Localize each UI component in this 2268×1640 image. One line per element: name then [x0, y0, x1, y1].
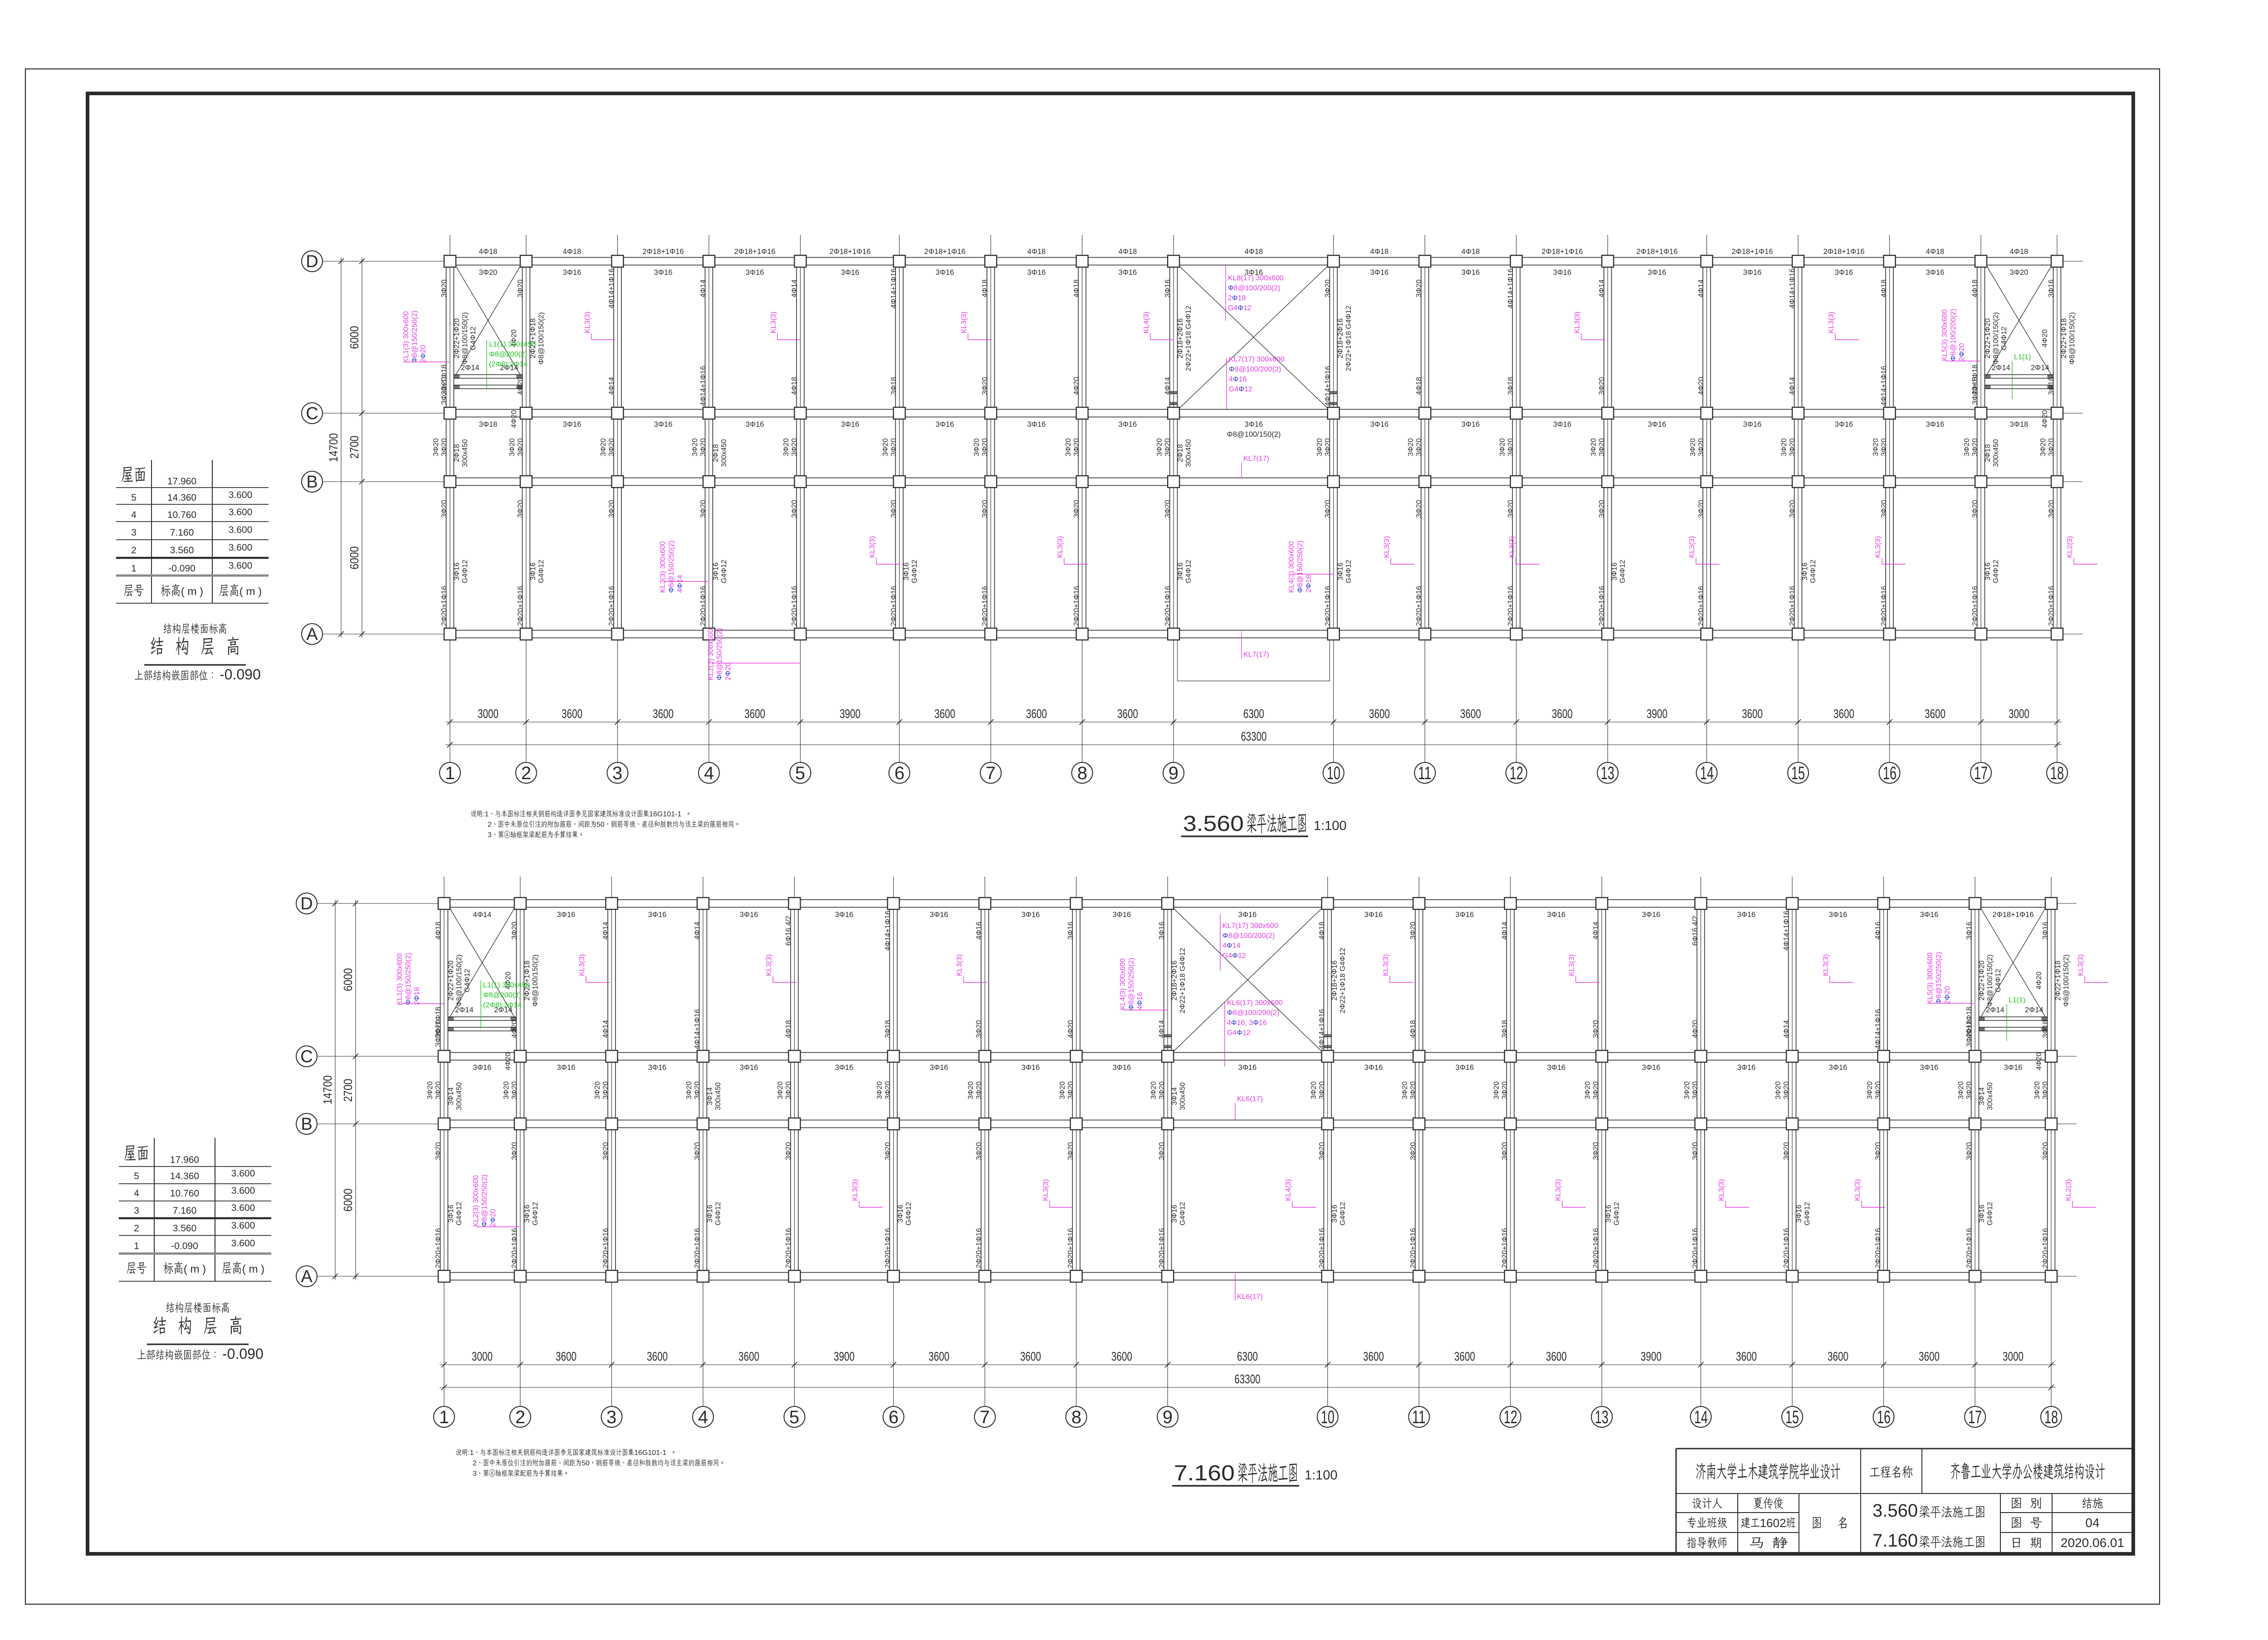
svg-text:3Φ20: 3Φ20: [435, 1081, 442, 1099]
svg-text:Φ: Φ: [1228, 284, 1234, 292]
svg-text:3Φ16: 3Φ16: [1553, 268, 1572, 277]
svg-text:3Φ20: 3Φ20: [694, 1142, 701, 1160]
svg-text:Φ: Φ: [1229, 366, 1235, 373]
svg-text:3Φ16: 3Φ16: [453, 562, 461, 581]
svg-text:3Φ16: 3Φ16: [563, 268, 582, 277]
svg-text:2Φ20+1Φ16: 2Φ20+1Φ16: [1971, 586, 1979, 626]
svg-text:3Φ20: 3Φ20: [1156, 438, 1163, 456]
svg-text:2Φ18+1Φ16: 2Φ18+1Φ16: [924, 248, 965, 256]
svg-text:1: 1: [1296, 571, 1304, 576]
svg-text:Φ: Φ: [1238, 386, 1244, 393]
svg-text:KL2(3): KL2(3): [2066, 536, 2074, 558]
svg-text:3Φ16: 3Φ16: [1456, 911, 1474, 919]
svg-text:G4Φ12: G4Φ12: [1185, 560, 1193, 583]
svg-text:4: 4: [1232, 1029, 1237, 1037]
svg-text:3Φ16: 3Φ16: [1829, 911, 1848, 919]
svg-text:3Φ20: 3Φ20: [981, 500, 989, 518]
svg-text:3Φ16: 3Φ16: [1113, 911, 1131, 919]
svg-text:3Φ16: 3Φ16: [835, 1064, 854, 1072]
svg-text:3Φ16: 3Φ16: [1027, 420, 1046, 429]
svg-text:3Φ20: 3Φ20: [1598, 500, 1606, 518]
svg-text:3Φ20: 3Φ20: [2048, 438, 2055, 456]
svg-text:3Φ16: 3Φ16: [563, 420, 582, 429]
svg-text:0: 0: [716, 651, 723, 655]
svg-text:2Φ20+1Φ16: 2Φ20+1Φ16: [1691, 1228, 1699, 1268]
svg-text:): ): [405, 953, 412, 955]
svg-text:KL5(3) 300x600: KL5(3) 300x600: [1926, 952, 1934, 1004]
svg-text:6000: 6000: [341, 968, 355, 991]
svg-text:300x450: 300x450: [455, 1082, 463, 1110]
svg-text:0: 0: [1248, 1009, 1252, 1017]
svg-text:3Φ20: 3Φ20: [1409, 922, 1417, 940]
svg-text:3900: 3900: [1641, 1349, 1662, 1363]
svg-text:4Φ18: 4Φ18: [791, 377, 798, 395]
svg-text:1: 1: [1242, 1029, 1246, 1037]
svg-text:300x450: 300x450: [714, 1082, 722, 1110]
svg-text:3Φ20: 3Φ20: [1971, 438, 1979, 456]
svg-text:3Φ20: 3Φ20: [1783, 1081, 1790, 1099]
svg-text:KL7(17): KL7(17): [1243, 651, 1269, 659]
svg-text:3Φ20: 3Φ20: [1789, 500, 1796, 518]
svg-text:3Φ16: 3Φ16: [654, 268, 673, 277]
svg-text:3Φ16: 3Φ16: [903, 562, 910, 581]
svg-text:4Φ18: 4Φ18: [1409, 1020, 1417, 1038]
svg-text:3Φ16: 3Φ16: [746, 420, 764, 429]
svg-text:3Φ18: 3Φ18: [2048, 377, 2055, 395]
svg-text:1: 1: [1128, 989, 1135, 993]
svg-text:1: 1: [1259, 1019, 1263, 1027]
svg-text:0: 0: [1252, 1009, 1256, 1017]
svg-text:3Φ20: 3Φ20: [517, 438, 524, 456]
svg-text:3Φ20: 3Φ20: [1415, 279, 1423, 298]
svg-text:0: 0: [1128, 966, 1135, 971]
svg-text:1: 1: [1136, 996, 1144, 1000]
svg-text:Φ: Φ: [489, 1217, 497, 1223]
svg-text:G4Φ12: G4Φ12: [911, 560, 919, 583]
svg-text:4Φ18: 4Φ18: [1370, 248, 1389, 256]
svg-text:G4Φ12: G4Φ12: [461, 560, 469, 583]
svg-text:): ): [1279, 366, 1281, 373]
svg-text:0: 0: [668, 563, 675, 567]
svg-text:3Φ16: 3Φ16: [1642, 1064, 1661, 1072]
svg-text:12: 12: [1504, 1407, 1517, 1427]
svg-text:3Φ20: 3Φ20: [426, 1081, 434, 1099]
svg-text:300x450: 300x450: [1179, 1082, 1187, 1110]
svg-text:11: 11: [1418, 763, 1432, 783]
svg-text:3Φ20: 3Φ20: [975, 1142, 983, 1160]
svg-text:3Φ20: 3Φ20: [1073, 438, 1080, 456]
svg-text:3Φ20: 3Φ20: [1697, 438, 1705, 456]
svg-text:3Φ20: 3Φ20: [1584, 1081, 1592, 1099]
svg-text:): ): [1272, 932, 1275, 940]
svg-text:4Φ14+1Φ16: 4Φ14+1Φ16: [1507, 268, 1515, 308]
svg-text:Φ: Φ: [1232, 294, 1238, 302]
svg-text:5: 5: [481, 1187, 489, 1191]
svg-text:0: 0: [1253, 284, 1257, 292]
svg-text:Φ8@100/150(2): Φ8@100/150(2): [2068, 312, 2076, 364]
svg-text:3Φ20: 3Φ20: [1507, 438, 1515, 456]
svg-text:2: 2: [1268, 932, 1272, 940]
svg-text:2: 2: [724, 676, 732, 680]
svg-text:L1(1) 300x450: L1(1) 300x450: [489, 341, 536, 348]
svg-text:2: 2: [1935, 954, 1943, 958]
svg-text:-0.090: -0.090: [168, 563, 196, 574]
svg-text:6: 6: [1243, 376, 1247, 383]
svg-text:15: 15: [1791, 763, 1805, 783]
svg-text:0: 0: [716, 637, 723, 641]
svg-text:KL2(3): KL2(3): [2065, 1179, 2072, 1201]
svg-text:3600: 3600: [1460, 707, 1481, 721]
svg-text:3Φ20: 3Φ20: [503, 1081, 510, 1099]
svg-text:2Φ20+1Φ16: 2Φ20+1Φ16: [699, 586, 707, 626]
svg-text:4Φ14: 4Φ14: [602, 1020, 610, 1038]
svg-text:KL8(17) 300x600: KL8(17) 300x600: [1228, 274, 1284, 282]
svg-text:8: 8: [1233, 1009, 1237, 1017]
svg-text:G4Φ12: G4Φ12: [714, 1202, 722, 1225]
svg-text:7.160: 7.160: [1174, 1461, 1235, 1485]
svg-text:1: 1: [1238, 952, 1242, 960]
svg-text:6: 6: [889, 1407, 899, 1427]
svg-text:3Φ20: 3Φ20: [1592, 1142, 1600, 1160]
svg-text:4: 4: [1136, 1006, 1144, 1010]
svg-text:4: 4: [1228, 952, 1232, 960]
svg-text:6: 6: [1263, 1019, 1267, 1027]
svg-text:3Φ20: 3Φ20: [882, 438, 890, 456]
svg-text:2Φ20+1Φ16: 2Φ20+1Φ16: [608, 586, 616, 626]
svg-text:10.760: 10.760: [167, 510, 196, 520]
svg-text:2: 2: [481, 1177, 489, 1181]
svg-text:KL3(3): KL3(3): [1854, 1179, 1862, 1201]
svg-text:3Φ20: 3Φ20: [1592, 1081, 1600, 1099]
svg-text:2Φ22+1Φ18: 2Φ22+1Φ18: [523, 961, 531, 1001]
svg-text:3Φ16: 3Φ16: [1245, 420, 1263, 429]
svg-text:4Φ14: 4Φ14: [1501, 922, 1509, 940]
svg-text:4Φ14: 4Φ14: [1158, 1020, 1166, 1038]
svg-text:KL6(17) 300x600: KL6(17) 300x600: [1227, 999, 1283, 1007]
svg-text:3Φ20: 3Φ20: [1073, 500, 1080, 518]
svg-text:3.600: 3.600: [229, 561, 253, 571]
svg-text:4Φ20: 4Φ20: [1691, 1020, 1699, 1038]
svg-text:4Φ18: 4Φ18: [785, 1020, 792, 1038]
svg-text:KL3(3): KL3(3): [851, 1179, 859, 1201]
svg-text:3Φ20: 3Φ20: [2033, 1081, 2041, 1099]
svg-text:2: 2: [724, 666, 732, 670]
svg-text:1:100: 1:100: [1314, 819, 1347, 833]
svg-text:3Φ16: 3Φ16: [1547, 911, 1566, 919]
svg-text:2: 2: [1950, 311, 1957, 315]
svg-text:3: 3: [606, 1407, 616, 1427]
svg-text:): ): [1935, 952, 1943, 954]
svg-text:4Φ14+1Φ16: 4Φ14+1Φ16: [1783, 911, 1790, 951]
svg-text:8: 8: [1296, 583, 1304, 587]
svg-text:1: 1: [1244, 386, 1248, 393]
svg-text:4Φ14: 4Φ14: [791, 279, 798, 298]
svg-text:14700: 14700: [327, 433, 340, 462]
svg-text:3Φ16: 3Φ16: [1119, 420, 1137, 429]
svg-text:3Φ20: 3Φ20: [1780, 438, 1788, 456]
svg-text:3600: 3600: [744, 707, 765, 721]
svg-text:4Φ18: 4Φ18: [1318, 922, 1326, 940]
svg-text:2Φ22+1Φ20: 2Φ22+1Φ20: [447, 961, 455, 1001]
svg-text:5: 5: [795, 763, 805, 783]
svg-text:3Φ20: 3Φ20: [1316, 438, 1324, 456]
svg-text:2: 2: [716, 645, 723, 649]
svg-text:6300: 6300: [1237, 1349, 1258, 1363]
svg-text:3Φ20: 3Φ20: [981, 438, 989, 456]
svg-text:): ): [411, 311, 419, 313]
svg-text:2Φ22+1Φ18: 2Φ22+1Φ18: [2060, 318, 2068, 358]
svg-text:3Φ16: 3Φ16: [1743, 268, 1762, 277]
svg-text:5: 5: [1296, 567, 1304, 571]
svg-text:3Φ16: 3Φ16: [648, 911, 667, 919]
svg-text:3Φ20: 3Φ20: [1324, 500, 1332, 518]
svg-text:04: 04: [2085, 1516, 2099, 1530]
svg-text:7.160: 7.160: [170, 527, 194, 538]
svg-text:3.600: 3.600: [229, 525, 253, 535]
svg-text:17: 17: [1968, 1407, 1982, 1427]
svg-text:8: 8: [413, 987, 421, 991]
svg-text:3600: 3600: [1833, 707, 1854, 721]
svg-text:4: 4: [134, 1188, 139, 1199]
svg-text:3Φ16: 3Φ16: [1795, 1205, 1803, 1223]
svg-text:3Φ16: 3Φ16: [447, 1205, 455, 1223]
svg-text:5: 5: [668, 567, 675, 571]
svg-text:3Φ20: 3Φ20: [884, 1142, 892, 1160]
svg-text:3Φ20: 3Φ20: [1965, 1142, 1973, 1160]
svg-text:3Φ20: 3Φ20: [479, 268, 498, 277]
svg-text:3Φ16: 3Φ16: [1648, 268, 1667, 277]
svg-text:2Φ20+1Φ16: 2Φ20+1Φ16: [1501, 1228, 1509, 1268]
svg-text:2: 2: [413, 1001, 421, 1005]
svg-text:( m ): ( m ): [240, 586, 262, 598]
svg-text:Φ: Φ: [724, 670, 732, 676]
svg-text:KL3(3): KL3(3): [1042, 1179, 1050, 1201]
svg-text:KL3(3): KL3(3): [1574, 312, 1581, 333]
svg-text:3Φ20: 3Φ20: [1789, 438, 1796, 456]
svg-text:3Φ20: 3Φ20: [699, 500, 707, 518]
svg-text:4Φ14: 4Φ14: [1783, 1020, 1790, 1038]
svg-text:C: C: [306, 404, 318, 423]
svg-text:2Φ18: 2Φ18: [712, 444, 720, 462]
svg-text:10: 10: [1327, 763, 1340, 783]
svg-text:KL6(17): KL6(17): [1237, 1293, 1263, 1301]
svg-text:KL7(17) 300x600: KL7(17) 300x600: [1229, 356, 1285, 363]
svg-text:5: 5: [481, 1201, 489, 1206]
svg-text:KL3(3): KL3(3): [1554, 1179, 1562, 1201]
svg-text:KL3(3): KL3(3): [956, 954, 963, 976]
svg-text:2Φ14: 2Φ14: [1986, 1006, 2004, 1014]
svg-text:2: 2: [473, 1459, 477, 1467]
svg-text:3.600: 3.600: [229, 507, 253, 517]
svg-text:): ): [481, 1175, 489, 1177]
svg-text:3Φ20: 3Φ20: [791, 500, 798, 518]
svg-text:2Φ20+1Φ16: 2Φ20+1Φ16: [791, 586, 798, 626]
svg-text:3Φ16: 3Φ16: [1337, 562, 1344, 581]
svg-text:G4Φ12: G4Φ12: [1992, 560, 2000, 583]
svg-text:3Φ20: 3Φ20: [1067, 1142, 1075, 1160]
svg-text:Φ: Φ: [1232, 952, 1238, 960]
svg-text:4Φ14+1Φ16: 4Φ14+1Φ16: [1318, 1009, 1326, 1049]
svg-text:G4Φ12: G4Φ12: [538, 560, 545, 583]
svg-text:3Φ20: 3Φ20: [602, 1142, 610, 1160]
svg-text:4Φ18: 4Φ18: [981, 279, 989, 298]
svg-text:KL3(3): KL3(3): [1822, 954, 1830, 976]
svg-text:3Φ20: 3Φ20: [1697, 500, 1705, 518]
svg-text:8: 8: [1234, 284, 1238, 292]
svg-text:2: 2: [1246, 1029, 1251, 1037]
svg-text:0: 0: [1935, 961, 1943, 965]
svg-text:Φ: Φ: [1305, 583, 1313, 589]
svg-text:3Φ16: 3Φ16: [1171, 1205, 1178, 1223]
svg-text:3Φ20: 3Φ20: [1401, 1081, 1409, 1099]
svg-text:3600: 3600: [647, 1349, 668, 1363]
svg-text:2Φ18+1Φ16: 2Φ18+1Φ16: [1636, 248, 1677, 256]
svg-text:Φ8@100/150(2): Φ8@100/150(2): [1227, 430, 1281, 439]
svg-text:3Φ20: 3Φ20: [1409, 1081, 1417, 1099]
svg-text:Φ: Φ: [420, 353, 427, 359]
svg-text:3600: 3600: [1454, 1349, 1475, 1363]
svg-text:4Φ14: 4Φ14: [1598, 279, 1606, 298]
svg-text:4Φ18: 4Φ18: [435, 922, 442, 940]
svg-text:2Φ20+1Φ16: 2Φ20+1Φ16: [1592, 1228, 1600, 1268]
svg-text:63300: 63300: [1241, 729, 1267, 743]
svg-text:(2Φ8);2Φ14: (2Φ8);2Φ14: [483, 1001, 522, 1009]
svg-text:2Φ22+1Φ18 G4Φ12: 2Φ22+1Φ18 G4Φ12: [1179, 948, 1187, 1014]
svg-text:2700: 2700: [347, 436, 361, 459]
svg-text:0: 0: [411, 319, 419, 323]
svg-text:3Φ20: 3Φ20: [594, 1081, 601, 1099]
svg-text:1:100: 1:100: [1305, 1468, 1338, 1483]
svg-text:2Φ20+1Φ16: 2Φ20+1Φ16: [981, 586, 989, 626]
svg-text:3Φ16: 3Φ16: [740, 911, 758, 919]
svg-text:3Φ20: 3Φ20: [2042, 1081, 2049, 1099]
svg-text:G4Φ12: G4Φ12: [532, 1202, 539, 1225]
svg-text:3Φ16: 3Φ16: [1737, 1064, 1756, 1072]
svg-text:17.960: 17.960: [167, 476, 196, 487]
svg-text:5: 5: [1128, 985, 1135, 989]
svg-text:3Φ14: 3Φ14: [1171, 1087, 1178, 1105]
svg-text:2Φ20+1Φ16: 2Φ20+1Φ16: [1874, 1228, 1882, 1268]
svg-text:3: 3: [473, 1470, 477, 1478]
svg-text:4Φ18: 4Φ18: [1926, 248, 1945, 256]
svg-text:3Φ20: 3Φ20: [508, 438, 516, 456]
svg-text:3Φ16: 3Φ16: [1743, 420, 1762, 429]
svg-text:): ): [668, 541, 675, 543]
svg-text:3Φ16: 3Φ16: [930, 1064, 948, 1072]
svg-text:4Φ18: 4Φ18: [1245, 248, 1263, 256]
svg-text:0: 0: [1249, 284, 1253, 292]
svg-text:1: 1: [1244, 1009, 1248, 1017]
svg-text:Φ: Φ: [1958, 351, 1966, 357]
svg-text:3Φ20: 3Φ20: [600, 438, 607, 456]
svg-text:2Φ20+1Φ16: 2Φ20+1Φ16: [1324, 586, 1332, 626]
svg-text:2Φ20+1Φ16: 2Φ20+1Φ16: [440, 586, 448, 626]
svg-text:1: 1: [411, 342, 419, 346]
svg-text:9: 9: [1163, 1407, 1173, 1427]
svg-text:3.600: 3.600: [231, 1220, 255, 1231]
svg-text:2Φ18+2Φ16: 2Φ18+2Φ16: [1177, 318, 1184, 358]
svg-text:2: 2: [1242, 952, 1246, 960]
svg-text:7.160: 7.160: [1872, 1531, 1918, 1551]
svg-text:3Φ16: 3Φ16: [1547, 1064, 1566, 1072]
svg-text:2Φ14: 2Φ14: [461, 364, 479, 372]
svg-text:3Φ20: 3Φ20: [435, 1020, 442, 1038]
svg-text:2: 2: [134, 1223, 139, 1234]
svg-text:3900: 3900: [1647, 707, 1667, 721]
svg-text:3.600: 3.600: [231, 1168, 255, 1179]
svg-text:50: 50: [596, 821, 605, 829]
svg-text:2Φ20+1Φ16: 2Φ20+1Φ16: [511, 1228, 518, 1268]
svg-text:KL3(3): KL3(3): [1718, 1179, 1725, 1201]
svg-text:3Φ20: 3Φ20: [691, 438, 699, 456]
svg-text:3Φ20: 3Φ20: [782, 438, 790, 456]
svg-text:Φ: Φ: [676, 583, 684, 589]
svg-text:3Φ16: 3Φ16: [1238, 1064, 1257, 1072]
svg-text:3Φ16: 3Φ16: [1461, 420, 1480, 429]
svg-text:0: 0: [1244, 932, 1248, 940]
svg-text:2Φ18+2Φ16: 2Φ18+2Φ16: [1337, 318, 1344, 358]
svg-text:4Φ14: 4Φ14: [694, 922, 701, 940]
svg-text:2Φ18+1Φ16: 2Φ18+1Φ16: [1731, 248, 1773, 256]
svg-text:Φ: Φ: [1231, 1019, 1237, 1027]
svg-text:3Φ16: 3Φ16: [1605, 1205, 1613, 1223]
svg-text:Φ: Φ: [1128, 1004, 1135, 1010]
svg-text:KL3(3): KL3(3): [1508, 536, 1516, 558]
svg-text:( m ): ( m ): [181, 586, 203, 598]
svg-text:2: 2: [1260, 366, 1264, 373]
svg-text:3Φ16: 3Φ16: [529, 562, 537, 581]
svg-text:3Φ20: 3Φ20: [1415, 438, 1423, 456]
svg-text:@: @: [1950, 344, 1957, 351]
svg-text:3.600: 3.600: [229, 490, 253, 500]
svg-text:1: 1: [716, 659, 723, 663]
svg-text:3Φ16: 3Φ16: [2048, 279, 2055, 298]
svg-text:Φ8@100/150(2): Φ8@100/150(2): [2063, 954, 2070, 1006]
svg-text:0: 0: [411, 333, 419, 337]
svg-text:3Φ20: 3Φ20: [1963, 438, 1971, 456]
svg-text:KL3(3): KL3(3): [2077, 954, 2085, 976]
svg-text:14: 14: [1700, 763, 1714, 783]
svg-text:2Φ20+1Φ16: 2Φ20+1Φ16: [1697, 586, 1705, 626]
svg-text:3Φ20: 3Φ20: [440, 279, 448, 298]
svg-text:4: 4: [704, 763, 714, 783]
svg-text:3Φ20: 3Φ20: [440, 500, 448, 518]
svg-text:3Φ20: 3Φ20: [511, 1081, 518, 1099]
svg-text:6: 6: [894, 763, 904, 783]
svg-text:4Φ14+1Φ16: 4Φ14+1Φ16: [699, 366, 707, 406]
svg-text:3600: 3600: [1919, 1349, 1940, 1363]
svg-text:1: 1: [1240, 932, 1244, 940]
svg-text:3Φ16: 3Φ16: [841, 420, 860, 429]
svg-text:3Φ16: 3Φ16: [1331, 1205, 1339, 1223]
svg-text:4Φ18: 4Φ18: [1880, 279, 1888, 298]
svg-text:14700: 14700: [321, 1075, 334, 1104]
svg-text:3Φ16: 3Φ16: [1835, 420, 1853, 429]
svg-text:2Φ18+1Φ16: 2Φ18+1Φ16: [1541, 248, 1583, 256]
svg-text:7.160: 7.160: [173, 1206, 197, 1216]
svg-text:1: 1: [131, 563, 137, 574]
svg-text:KL3(3): KL3(3): [584, 312, 591, 333]
svg-text:3Φ20: 3Φ20: [1059, 1081, 1066, 1099]
svg-text:3000: 3000: [2009, 707, 2029, 721]
svg-text:3Φ16: 3Φ16: [712, 562, 720, 581]
svg-text:2Φ20+1Φ16: 2Φ20+1Φ16: [1067, 1228, 1075, 1268]
svg-text:3600: 3600: [1363, 1349, 1384, 1363]
svg-text:8: 8: [716, 670, 723, 674]
svg-text:0: 0: [1950, 336, 1957, 340]
svg-text:3000: 3000: [2003, 1349, 2024, 1363]
svg-text:3Φ20: 3Φ20: [1499, 438, 1506, 456]
